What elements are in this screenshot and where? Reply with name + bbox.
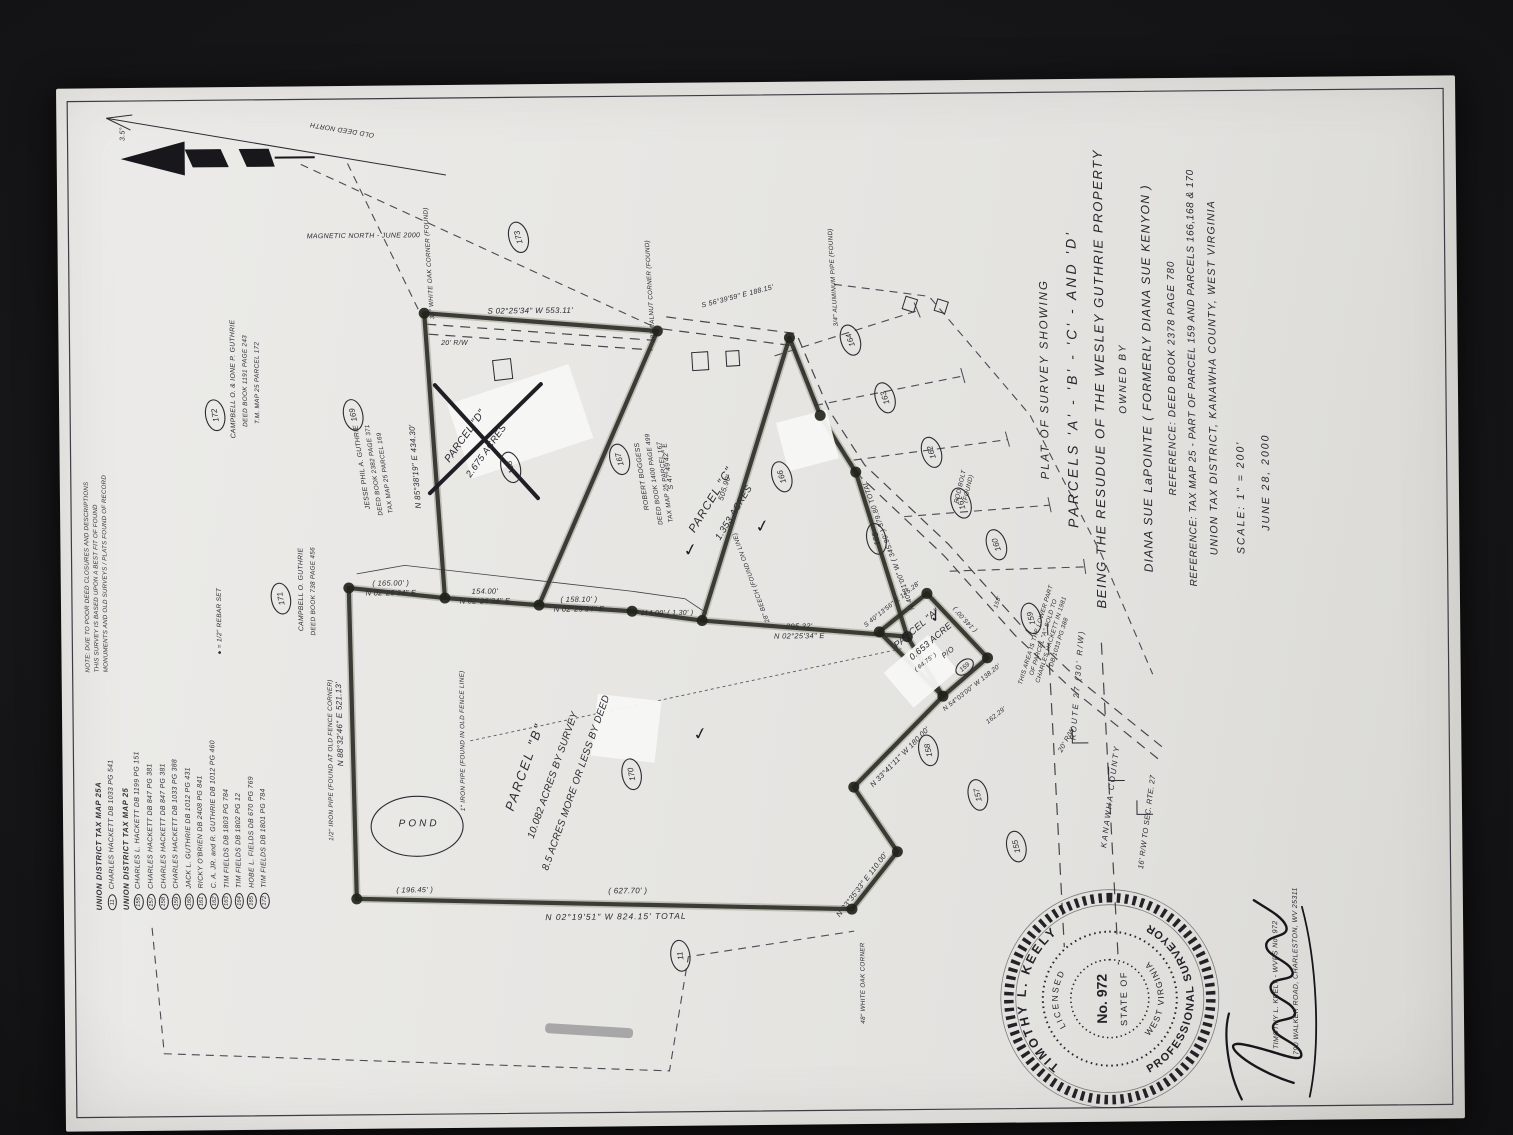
pen-checkmark: ✓ bbox=[754, 516, 771, 537]
svg-text:38" WHITE OAK CORNER (FOUND): 38" WHITE OAK CORNER (FOUND) bbox=[422, 207, 436, 319]
parcel-boundary-glow bbox=[699, 337, 907, 639]
svg-text:114.00' ( 1.30' ): 114.00' ( 1.30' ) bbox=[641, 610, 694, 618]
svg-text:S 02°25'34" W 553.11': S 02°25'34" W 553.11' bbox=[487, 306, 573, 316]
svg-text:LICENSED: LICENSED bbox=[1049, 968, 1067, 1031]
svg-text:171: 171 bbox=[275, 591, 286, 606]
map-label: ( 196.45' ) bbox=[396, 885, 433, 894]
north-arrow-icon bbox=[185, 149, 229, 167]
map-label: 3.5° bbox=[118, 127, 126, 141]
whiteout-patch bbox=[776, 410, 839, 471]
north-arrow-icon bbox=[239, 149, 275, 167]
boundary-tick bbox=[1005, 432, 1009, 447]
map-label: 20' R/W bbox=[440, 340, 469, 347]
parcel-number-badge: 157 bbox=[965, 778, 990, 812]
map-label: ( 165.00' )N 02°25'34" E bbox=[365, 578, 416, 597]
svg-text:154.00'N 02°25'34" E: 154.00'N 02°25'34" E bbox=[460, 586, 511, 605]
map-label: 48" WHITE OAK CORNER bbox=[859, 942, 867, 1024]
legend-owner-text: HOBE L. FIELDS DB 670 PG 769 bbox=[247, 776, 255, 888]
svg-text:WEST VIRGINIA: WEST VIRGINIA bbox=[1142, 959, 1166, 1038]
svg-text:S 56°39'59" E 188.15': S 56°39'59" E 188.15' bbox=[701, 283, 775, 309]
map-label: T.M. MAP 25 PARCEL 172 bbox=[253, 342, 261, 424]
survey-node bbox=[892, 846, 903, 857]
svg-text:DEED BOOK 738 PAGE 456: DEED BOOK 738 PAGE 456 bbox=[309, 547, 317, 636]
svg-text:N 85°38'19" E 434.30': N 85°38'19" E 434.30' bbox=[407, 424, 423, 509]
map-label: DEED BOOK 738 PAGE 456 bbox=[309, 547, 317, 636]
svg-text:169: 169 bbox=[347, 407, 359, 423]
svg-text:158': 158' bbox=[993, 595, 1003, 609]
survey-node bbox=[982, 652, 993, 663]
parcel-number-badge: 155 bbox=[1004, 829, 1029, 863]
title-block: PLAT OF SURVEY SHOWING PARCELS 'A' - 'B'… bbox=[1035, 24, 1274, 732]
survey-node bbox=[533, 600, 544, 611]
map-label: 16' R/W TO SEC. RTE. 27 bbox=[1136, 774, 1157, 870]
map-label: MAGNETIC NORTH - JUNE 2000 bbox=[307, 232, 421, 240]
parcel-number-badge: 161 bbox=[197, 893, 207, 909]
parcel-number-badge: 158 bbox=[159, 894, 169, 910]
paper-sheet: ✓✓✓✓PARCEL "B"10.082 ACRES BY SURVEY8.5 … bbox=[56, 75, 1465, 1131]
map-label: N 88°32'46" E 521.13' bbox=[334, 682, 345, 767]
svg-text:OLD DEED NORTH: OLD DEED NORTH bbox=[310, 121, 375, 139]
stamp-state-arc: WEST VIRGINIA bbox=[1142, 959, 1166, 1038]
map-label: ● = 1/2" REBAR SET bbox=[216, 587, 224, 655]
legend-owner-text: JACK L. GUTHRIE DB 1012 PG 431 bbox=[184, 767, 192, 888]
svg-text:160: 160 bbox=[990, 536, 1003, 552]
parcel-number-badge: 163 bbox=[871, 380, 899, 415]
map-label: POND bbox=[399, 818, 440, 829]
svg-text:( 196.45' ): ( 196.45' ) bbox=[396, 885, 433, 894]
parcel-number-badge: 173 bbox=[505, 220, 532, 255]
svg-text:162.29': 162.29' bbox=[985, 705, 1008, 725]
parcel-number-badge: 11 bbox=[669, 939, 692, 972]
smudge-mark bbox=[545, 1023, 633, 1038]
svg-text:173: 173 bbox=[512, 229, 524, 245]
map-label: 3/4" ALUMINUM PIPE (FOUND) bbox=[827, 228, 840, 327]
legend-block: UNION DISTRICT TAX MAP 25A11CHARLES HACK… bbox=[90, 740, 271, 911]
parcel-number-badge: 165 bbox=[247, 893, 257, 909]
map-label: OLD DEED NORTH bbox=[310, 121, 375, 139]
photo-background: ✓✓✓✓PARCEL "B"10.082 ACRES BY SURVEY8.5 … bbox=[0, 0, 1513, 1135]
legend-owner-text: CHARLES HACKETT DB 847 PG 381 bbox=[159, 763, 167, 889]
svg-text:20' R/W: 20' R/W bbox=[440, 340, 469, 347]
legend-owner-text: RICKY O'BRIEN DB 2408 PG 841 bbox=[197, 775, 205, 888]
legend-owner-text: CHARLES HACKETT DB 1033 PG 388 bbox=[172, 759, 180, 889]
plat-document: ✓✓✓✓PARCEL "B"10.082 ACRES BY SURVEY8.5 … bbox=[60, 81, 1460, 1124]
svg-text:CAMPBELL O. GUTHRIE: CAMPBELL O. GUTHRIE bbox=[297, 548, 305, 632]
svg-text:28" BEECH (FOUND ON LINE): 28" BEECH (FOUND ON LINE) bbox=[731, 532, 771, 625]
svg-text:170: 170 bbox=[626, 766, 637, 781]
svg-text:( 165.00' )N 02°25'34" E: ( 165.00' )N 02°25'34" E bbox=[365, 578, 416, 597]
survey-node bbox=[351, 893, 362, 904]
parcel-number-badge: 157 bbox=[146, 894, 156, 910]
svg-text:3.5°: 3.5° bbox=[118, 127, 126, 141]
survey-node bbox=[697, 615, 708, 626]
map-label: 154.00'N 02°25'34" E bbox=[460, 586, 511, 605]
map-label: N 85°38'19" E 434.30' bbox=[407, 424, 423, 509]
parcel-number-badge: 164 bbox=[837, 322, 865, 357]
legend-owner-text: C. A. JR. and R. GUTHRIE DB 1012 PG 460 bbox=[209, 740, 217, 888]
svg-text:( 627.70' ): ( 627.70' ) bbox=[608, 886, 647, 895]
reference-line: REFERENCE: TAX MAP 25 - PART OF PARCEL 1… bbox=[1183, 25, 1201, 731]
survey-node bbox=[921, 588, 932, 599]
svg-text:48" WHITE OAK CORNER: 48" WHITE OAK CORNER bbox=[859, 942, 867, 1024]
survey-node bbox=[848, 782, 859, 793]
boundary-tick bbox=[961, 368, 965, 383]
legend-row: 172TIM FIELDS DB 1801 PG 784 bbox=[257, 740, 271, 909]
map-label: N 02°19'51" W 824.15' TOTAL bbox=[545, 911, 686, 922]
map-label: S 02°25'34" W 553.11' bbox=[487, 306, 573, 316]
svg-text:166: 166 bbox=[775, 469, 788, 485]
structure-square bbox=[493, 359, 513, 381]
signature bbox=[1195, 852, 1347, 1113]
map-label: KANAWHA COUNTY bbox=[1099, 744, 1121, 848]
signature-flourish bbox=[1302, 907, 1317, 1097]
svg-text:162: 162 bbox=[925, 444, 938, 460]
svg-text:MAGNETIC NORTH - JUNE 20: MAGNETIC NORTH - JUNE 2000 bbox=[307, 232, 421, 240]
survey-node bbox=[343, 582, 354, 593]
svg-text:164: 164 bbox=[844, 332, 857, 348]
svg-text:KANAWHA COUNTY: KANAWHA COUNTY bbox=[1099, 744, 1121, 848]
reference-line: REFERENCE: DEED BOOK 2378 PAGE 780 bbox=[1163, 25, 1181, 731]
parcel-number-badge: 172 bbox=[203, 398, 227, 432]
surveyor-address-line: TIMOTHY L. KEELY - WVPS No. 972 bbox=[1272, 920, 1280, 1049]
old-north-arrow-icon bbox=[106, 115, 446, 178]
survey-node bbox=[784, 332, 795, 343]
legend-row: 11CHARLES HACKETT DB 1033 PG 541 bbox=[104, 741, 118, 910]
stamp-stateof: STATE OF bbox=[1119, 971, 1130, 1026]
old-boundary-dashed-line bbox=[301, 161, 653, 329]
surveyor-stamp: TIMOTHY L. KEELY PROFESSIONAL SURVEYOR L… bbox=[996, 880, 1230, 1114]
parcel-number-badge: 170 bbox=[619, 757, 643, 791]
svg-text:N 33°41'11" W 180.00': N 33°41'11" W 180.00' bbox=[868, 725, 931, 789]
legend-owner-text: TIM FIELDS DB 1803 PG 784 bbox=[222, 789, 230, 888]
svg-text:167: 167 bbox=[613, 451, 625, 467]
svg-text:16' R/W TO SEC. RTE. 27: 16' R/W TO SEC. RTE. 27 bbox=[1136, 774, 1157, 870]
survey-node bbox=[937, 691, 948, 702]
survey-node bbox=[815, 410, 826, 421]
svg-text:POND: POND bbox=[399, 818, 440, 829]
legend-owner-text: CHARLES HACKETT DB 847 PG 381 bbox=[146, 763, 154, 889]
svg-text:158: 158 bbox=[922, 742, 934, 758]
svg-text:N 33°35'33" E 110.00': N 33°35'33" E 110.00' bbox=[834, 850, 889, 918]
map-label: ( 627.70' ) bbox=[608, 886, 647, 895]
map-label: 114.00' ( 1.30' ) bbox=[641, 610, 694, 618]
boundary-tick bbox=[914, 302, 920, 317]
map-label: N 33°41'11" W 180.00' bbox=[868, 725, 931, 789]
svg-text:1" IRON PIPE (FOUND IN OLD FEN: 1" IRON PIPE (FOUND IN OLD FENCE LINE) bbox=[459, 671, 467, 812]
map-label: 28" BEECH (FOUND ON LINE) bbox=[731, 532, 771, 625]
legend-owner-text: CHARLES L. HACKETT DB 1199 PG 151 bbox=[134, 751, 142, 889]
legend-owner-text: TIM FIELDS DB 1801 PG 784 bbox=[260, 788, 268, 887]
svg-text:172: 172 bbox=[209, 407, 220, 422]
north-arrow-icon bbox=[121, 142, 185, 177]
pen-checkmark: ✓ bbox=[692, 723, 709, 744]
map-label: S 56°39'59" E 188.15' bbox=[701, 283, 775, 309]
map-label: CAMPBELL O. GUTHRIE bbox=[297, 548, 305, 632]
survey-node bbox=[850, 467, 861, 478]
parcel-number-badge: 160 bbox=[184, 893, 194, 909]
svg-text:N 02°19'51" W 824.15' TO: N 02°19'51" W 824.15' TOTAL bbox=[545, 911, 686, 922]
parcel-number-badge: 155 bbox=[134, 894, 144, 910]
parcel-number-badge: 159 bbox=[172, 894, 182, 910]
svg-text:DEED BOOK 1191 PAGE 243: DEED BOOK 1191 PAGE 243 bbox=[241, 335, 249, 427]
pen-checkmark: ✓ bbox=[682, 539, 699, 560]
parcel-number-badge: 172 bbox=[260, 893, 270, 909]
svg-text:N 88°32'46" E 521.13': N 88°32'46" E 521.13' bbox=[334, 682, 345, 767]
legend-owner-text: CHARLES HACKETT DB 1033 PG 541 bbox=[107, 760, 115, 890]
stamp-licensed-arc: LICENSED bbox=[1049, 968, 1067, 1031]
svg-text:T.M. MAP 25 PARCEL 172: T.M. MAP 25 PARCEL 172 bbox=[253, 342, 261, 424]
svg-text:157: 157 bbox=[972, 787, 984, 803]
svg-text:3/4" ALUMINUM PIPE (FOUND): 3/4" ALUMINUM PIPE (FOUND) bbox=[827, 228, 840, 327]
owner-name: DIANA SUE LaPOINTE ( FORMERLY DIANA SUE … bbox=[1136, 25, 1157, 731]
svg-text:● = 1/2" REBAR SET: ● = 1/2" REBAR SET bbox=[216, 587, 224, 655]
district-line: UNION TAX DISTRICT, KANAWHA COUNTY, WEST… bbox=[1203, 25, 1222, 731]
parcel-number-badge: 163 bbox=[222, 893, 232, 909]
parcel-number-badge: 162 bbox=[918, 435, 946, 470]
map-label: CAMPBELL O. & IONE P. GUTHRIE bbox=[229, 319, 237, 438]
map-label: N 33°35'33" E 110.00' bbox=[834, 850, 889, 918]
map-label: 38" WHITE OAK CORNER (FOUND) bbox=[422, 207, 436, 319]
map-label: ( 158.10' )N 02°25'34" E bbox=[554, 594, 605, 613]
title-line: OWNED BY bbox=[1114, 25, 1132, 731]
old-boundary-dashed-line bbox=[152, 921, 855, 1076]
map-label: 158' bbox=[993, 595, 1003, 609]
stamp-number: No. 972 bbox=[1094, 974, 1110, 1024]
parcel-number-badge: 162 bbox=[209, 893, 219, 909]
parcel-boundary-line bbox=[424, 311, 660, 606]
parcel-boundary-glow bbox=[424, 311, 660, 606]
title-line: PARCELS 'A' - 'B' - 'C' - AND 'D' bbox=[1060, 26, 1083, 732]
map-label: 1" IRON PIPE (FOUND IN OLD FENCE LINE) bbox=[459, 671, 467, 812]
map-label: DEED BOOK 1191 PAGE 243 bbox=[241, 335, 249, 427]
survey-node bbox=[439, 592, 450, 603]
legend-section-header: UNION DISTRICT TAX MAP 25 bbox=[120, 741, 131, 910]
survey-node bbox=[874, 626, 885, 637]
signature-stroke bbox=[1232, 900, 1302, 1084]
svg-text:159: 159 bbox=[1025, 610, 1037, 626]
parcel-number-badge: 160 bbox=[983, 527, 1011, 562]
old-boundary-dashed-line bbox=[904, 505, 1049, 516]
parcel-number-badge: 164 bbox=[235, 893, 245, 909]
svg-text:( 158.10' )N 02°25'34" E: ( 158.10' )N 02°25'34" E bbox=[554, 594, 605, 613]
map-label: 162.29' bbox=[985, 705, 1008, 725]
structure-square bbox=[726, 351, 740, 367]
svg-text:163: 163 bbox=[878, 390, 891, 406]
svg-text:11: 11 bbox=[675, 951, 685, 961]
parcel-number-badge: 11 bbox=[107, 894, 117, 910]
svg-text:CAMPBELL O. & IONE P. GUTHRIE: CAMPBELL O. & IONE P. GUTHRIE bbox=[229, 319, 237, 438]
svg-text:155: 155 bbox=[1010, 839, 1022, 855]
survey-node bbox=[627, 606, 638, 617]
legend-section-header: UNION DISTRICT TAX MAP 25A bbox=[93, 741, 104, 910]
legend-owner-text: TIM FIELDS DB 1802 PG 12 bbox=[235, 793, 243, 888]
parcel-number-badge: 171 bbox=[269, 582, 293, 616]
survey-note: NOTE: DUE TO POOR DEED CLOSURES AND DESC… bbox=[81, 422, 110, 672]
title-line: BEING THE RESUDUE OF THE WESLEY GUTHRIE … bbox=[1088, 26, 1110, 732]
structure-square bbox=[692, 352, 709, 371]
